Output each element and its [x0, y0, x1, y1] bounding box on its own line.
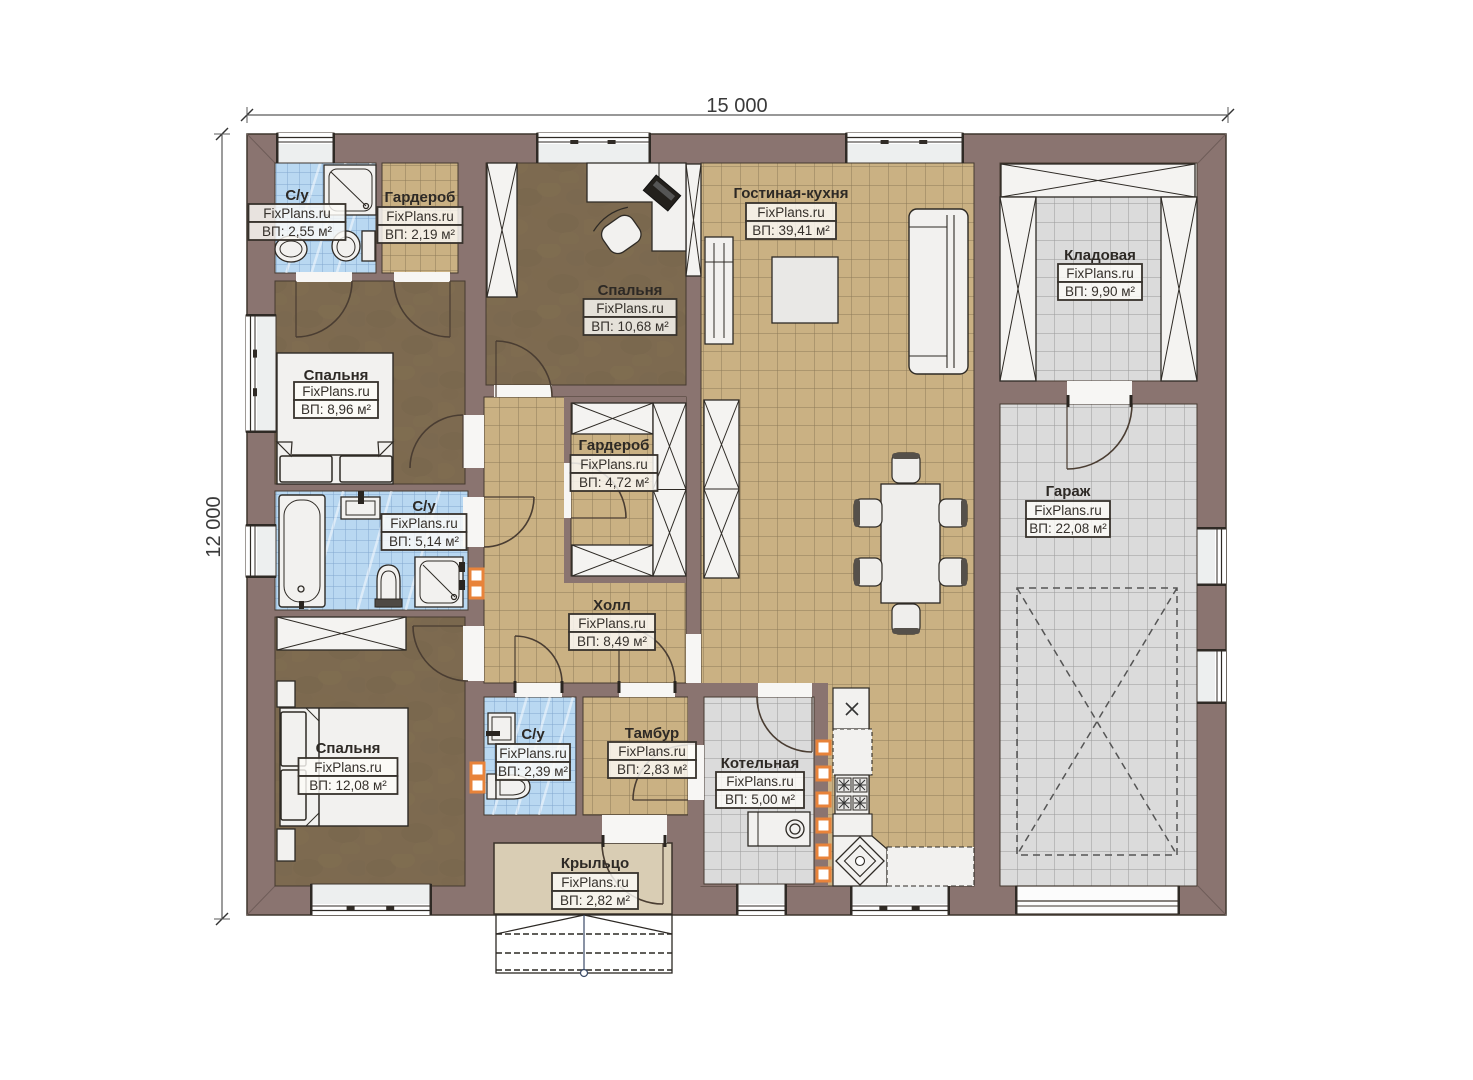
svg-text:FixPlans.ru: FixPlans.ru — [499, 746, 567, 761]
svg-text:FixPlans.ru: FixPlans.ru — [578, 616, 646, 631]
svg-text:ВП: 22,08 м²: ВП: 22,08 м² — [1029, 521, 1107, 536]
svg-text:ВП: 9,90 м²: ВП: 9,90 м² — [1065, 284, 1136, 299]
svg-text:Котельная: Котельная — [721, 755, 800, 772]
svg-text:ВП: 10,68 м²: ВП: 10,68 м² — [591, 319, 669, 334]
svg-text:ВП: 2,39 м²: ВП: 2,39 м² — [498, 764, 569, 779]
svg-text:FixPlans.ru: FixPlans.ru — [302, 384, 370, 399]
svg-text:FixPlans.ru: FixPlans.ru — [314, 760, 382, 775]
svg-text:Тамбур: Тамбур — [625, 725, 679, 742]
svg-text:FixPlans.ru: FixPlans.ru — [618, 744, 686, 759]
svg-text:ВП: 8,96 м²: ВП: 8,96 м² — [301, 402, 372, 417]
svg-text:С/у: С/у — [285, 187, 309, 204]
svg-text:ВП: 5,14 м²: ВП: 5,14 м² — [389, 534, 460, 549]
svg-text:ВП: 39,41 м²: ВП: 39,41 м² — [752, 223, 830, 238]
svg-text:FixPlans.ru: FixPlans.ru — [386, 209, 454, 224]
svg-text:Спальня: Спальня — [316, 740, 381, 757]
svg-text:ВП: 2,19 м²: ВП: 2,19 м² — [385, 227, 456, 242]
svg-text:FixPlans.ru: FixPlans.ru — [1066, 266, 1134, 281]
svg-text:ВП: 12,08 м²: ВП: 12,08 м² — [309, 778, 387, 793]
svg-text:Гостиная-кухня: Гостиная-кухня — [734, 185, 849, 202]
svg-text:FixPlans.ru: FixPlans.ru — [1034, 503, 1102, 518]
svg-text:Спальня: Спальня — [598, 282, 663, 299]
svg-text:ВП: 4,72 м²: ВП: 4,72 м² — [579, 475, 650, 490]
svg-text:FixPlans.ru: FixPlans.ru — [596, 301, 664, 316]
svg-text:FixPlans.ru: FixPlans.ru — [580, 457, 648, 472]
svg-text:12 000: 12 000 — [203, 496, 225, 557]
svg-text:FixPlans.ru: FixPlans.ru — [757, 205, 825, 220]
svg-text:FixPlans.ru: FixPlans.ru — [263, 206, 331, 221]
svg-text:ВП: 2,82 м²: ВП: 2,82 м² — [560, 893, 631, 908]
svg-text:С/у: С/у — [521, 726, 545, 743]
svg-text:15 000: 15 000 — [706, 95, 767, 117]
svg-text:ВП: 2,55 м²: ВП: 2,55 м² — [262, 224, 333, 239]
svg-text:С/у: С/у — [412, 498, 436, 515]
svg-text:FixPlans.ru: FixPlans.ru — [561, 875, 629, 890]
svg-text:Кладовая: Кладовая — [1064, 247, 1136, 264]
svg-text:ВП: 2,83 м²: ВП: 2,83 м² — [617, 762, 688, 777]
svg-text:Холл: Холл — [593, 597, 631, 614]
svg-text:FixPlans.ru: FixPlans.ru — [726, 774, 794, 789]
svg-text:FixPlans.ru: FixPlans.ru — [390, 516, 458, 531]
svg-text:Крыльцо: Крыльцо — [561, 855, 629, 872]
svg-text:Гардероб: Гардероб — [579, 437, 650, 454]
svg-text:ВП: 8,49 м²: ВП: 8,49 м² — [577, 634, 648, 649]
svg-text:Гардероб: Гардероб — [385, 189, 456, 206]
svg-text:Гараж: Гараж — [1046, 483, 1091, 500]
svg-text:ВП: 5,00 м²: ВП: 5,00 м² — [725, 792, 796, 807]
